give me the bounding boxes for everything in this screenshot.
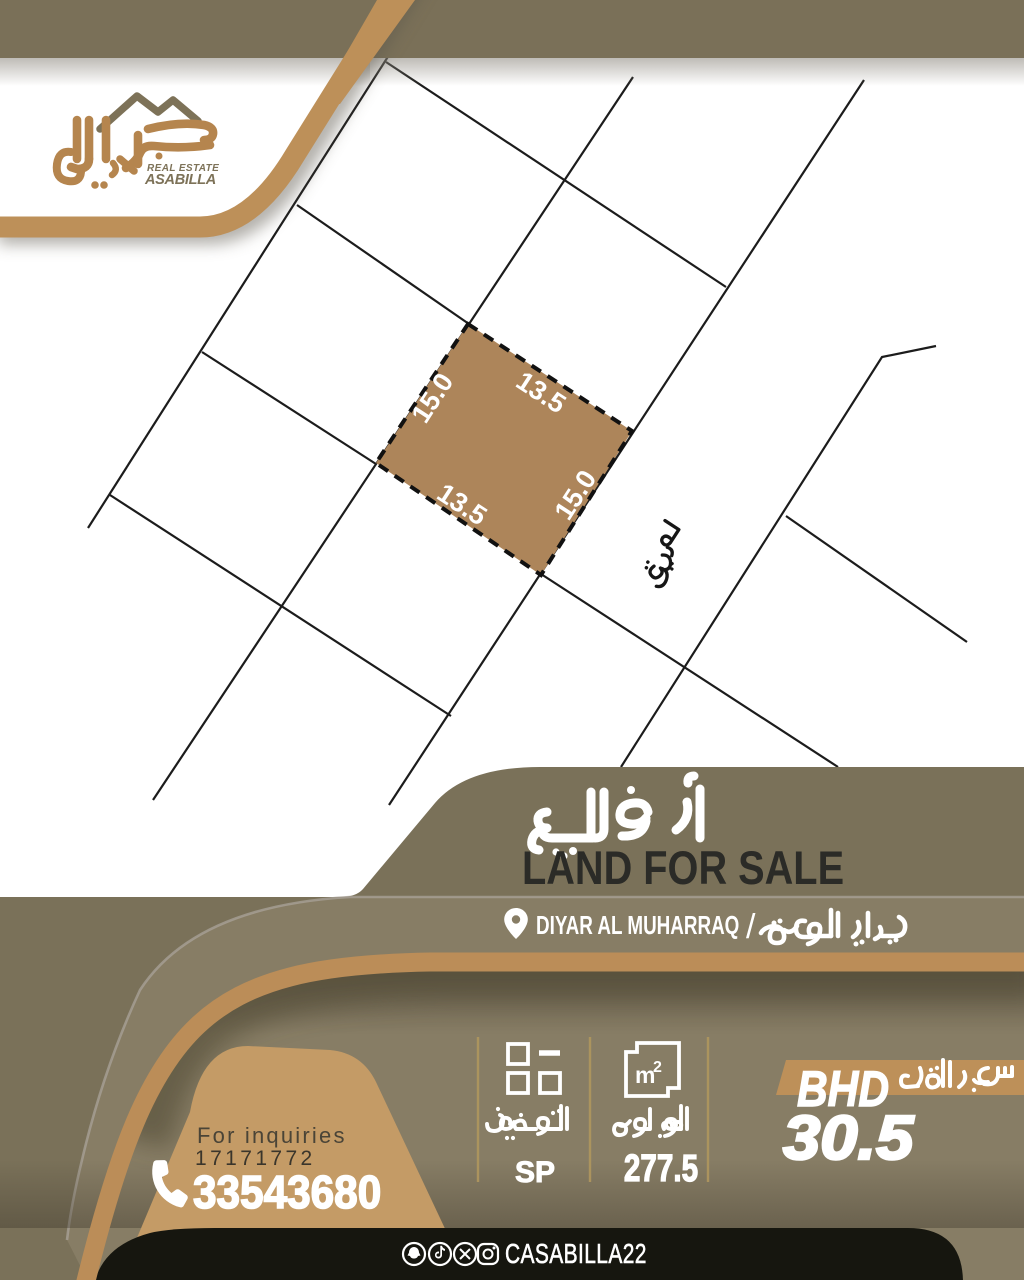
svg-text:2: 2	[653, 1059, 662, 1076]
svg-text:LAND FOR SALE: LAND FOR SALE	[522, 843, 844, 895]
svg-text:277.5: 277.5	[624, 1148, 698, 1190]
svg-text:/: /	[746, 908, 756, 946]
svg-text:ASABILLA: ASABILLA	[144, 172, 216, 188]
svg-text:33543680: 33543680	[193, 1167, 381, 1218]
svg-text:SP: SP	[515, 1156, 555, 1189]
svg-text:DIYAR AL MUHARRAQ: DIYAR AL MUHARRAQ	[536, 910, 739, 940]
svg-text:For inquiries: For inquiries	[197, 1123, 347, 1148]
svg-text:CASABILLA22: CASABILLA22	[505, 1239, 647, 1270]
svg-text:30.5: 30.5	[783, 1103, 914, 1172]
